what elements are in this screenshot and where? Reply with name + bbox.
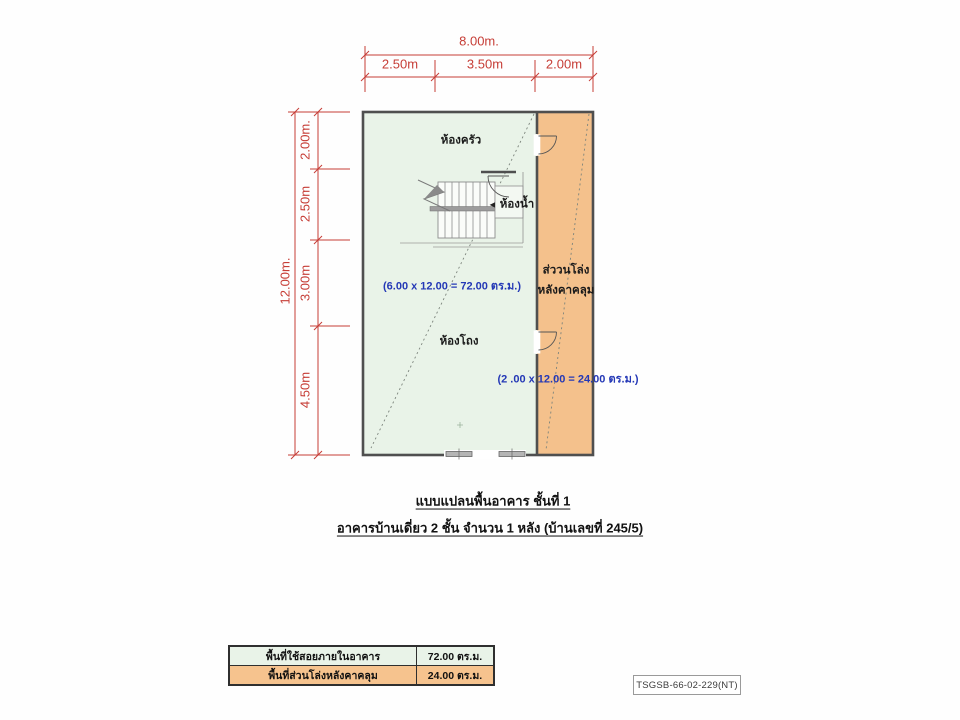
dim-overall-width: 8.00m.	[459, 35, 499, 50]
stair-landing-rail	[430, 207, 495, 212]
bathroom-text: ห้องน้ำ	[500, 198, 534, 211]
table-cell-covered-value: 24.00 ตร.ม.	[417, 666, 493, 684]
dim-top-segment-1: 2.50m	[382, 58, 418, 73]
floor-plan-page: 8.00m. 2.50m 3.50m 2.00m 12.00m. 2.00m. …	[0, 0, 960, 720]
dim-overall-height: 12.00m.	[279, 258, 294, 305]
open-area-label-line1: ส่ววนโล่ง	[543, 264, 590, 277]
room-label-bathroom: ◄ ห้องน้ำ	[488, 198, 534, 211]
room-label-hall: ห้องโถง	[440, 335, 479, 348]
dim-top-segment-3: 2.00m	[546, 58, 582, 73]
room-label-kitchen: ห้องครัว	[441, 134, 481, 147]
table-cell-interior-label: พื้นที่ใช้สอยภายในอาคาร	[230, 647, 417, 665]
document-code-box: TSGSB-66-02-229(NT)	[633, 675, 741, 695]
table-cell-covered-label: พื้นที่ส่วนโล่งหลังคาคลุม	[230, 666, 417, 684]
sliding-door	[444, 449, 526, 460]
area-summary-table: พื้นที่ใช้สอยภายในอาคาร 72.00 ตร.ม. พื้น…	[228, 645, 495, 686]
table-cell-interior-value: 72.00 ตร.ม.	[417, 647, 493, 665]
dim-left-segment-3: 3.00m	[299, 265, 314, 301]
table-row: พื้นที่ใช้สอยภายในอาคาร 72.00 ตร.ม.	[230, 647, 493, 665]
dim-left-segment-2: 2.50m	[299, 186, 314, 222]
drawing-title: แบบแปลนพื้นอาคาร ชั้นที่ 1	[416, 495, 571, 510]
covered-area-text: (2 .00 x 12.00 = 24.00 ตร.ม.)	[497, 374, 638, 387]
open-area-label-line2: หลังคาคลุม	[538, 284, 595, 297]
dim-left-segment-1: 2.00m.	[299, 120, 314, 160]
interior-area-text: (6.00 x 12.00 = 72.00 ตร.ม.)	[383, 281, 521, 294]
table-row: พื้นที่ส่วนโล่งหลังคาคลุม 24.00 ตร.ม.	[230, 665, 493, 684]
arrow-left-icon: ◄	[488, 200, 497, 210]
drawing-subtitle: อาคารบ้านเดี่ยว 2 ชั้น จำนวน 1 หลัง (บ้า…	[337, 522, 643, 537]
dim-left-segment-4: 4.50m	[299, 372, 314, 408]
floor-plan-drawing	[0, 0, 960, 720]
dim-top-segment-2: 3.50m	[467, 58, 503, 73]
